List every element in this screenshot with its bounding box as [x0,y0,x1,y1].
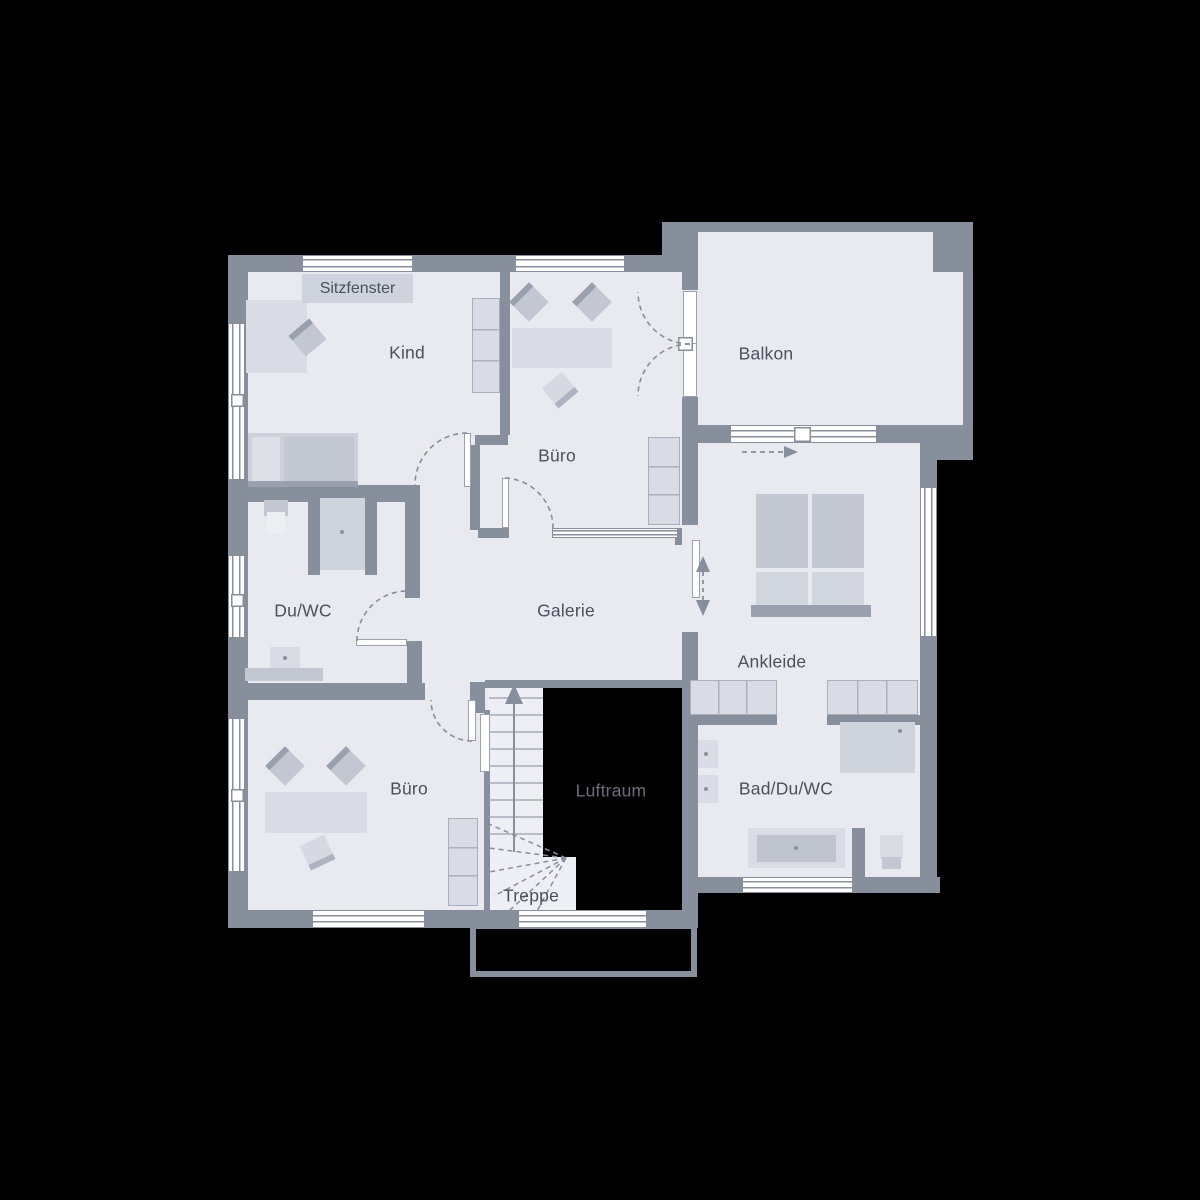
window [920,487,937,637]
room-label-ankleide: Ankleide [738,652,807,673]
window-mullion [794,427,811,442]
tub-drain [794,846,798,850]
window [312,910,425,928]
wardrobe-row [827,680,918,715]
vanity-counter [245,668,323,681]
shower-wall [308,485,320,575]
balcony-post [933,425,973,460]
room-label-luftraum: Luftraum [576,781,647,802]
wall [470,445,480,530]
floor-plan-canvas: Sitzfenster [0,0,1200,1200]
window [515,255,625,272]
toilet-bowl [880,835,903,859]
shower-wall [365,485,377,575]
room-label-bad-du-wc: Bad/Du/WC [739,779,833,800]
stairwell-area [488,687,543,913]
washbasin [698,775,718,803]
room-label-galerie: Galerie [537,601,595,622]
room-label-buero-unten: Büro [390,779,428,800]
sideboard [648,437,680,525]
bed-mattress [756,494,808,568]
door-opening [405,598,420,641]
balcony-parapet [662,222,973,232]
wall [405,502,420,598]
toilet-tank [882,857,901,869]
door-opening [425,683,468,700]
sliding-door-panel [692,540,700,598]
bed-mattress [812,494,864,568]
wall [228,255,698,272]
right-wing-floor-area [698,440,922,880]
wall [852,828,865,893]
door-opening [509,528,553,538]
sitzfenster-box: Sitzfenster [302,274,413,303]
balcony-floor-area [698,230,963,426]
toilet-bowl [267,512,285,534]
french-door-leaf [683,343,697,397]
sitzfenster-label: Sitzfenster [320,280,396,298]
shelf-cabinet [448,818,478,906]
lower-floor-outline [470,923,697,977]
bed-pillow [252,437,280,483]
room-label-kind: Kind [389,343,425,364]
bed-headboard [248,481,358,487]
shower-drain [340,530,344,534]
window [742,877,853,893]
wall [228,683,425,700]
balcony-post [662,222,698,270]
wardrobe-row [690,680,777,715]
window [302,255,413,272]
wall [407,641,422,685]
basin-drain [283,656,287,660]
room-label-buero-oben: Büro [538,446,576,467]
room-label-balkon: Balkon [739,344,794,365]
room-label-du-wc: Du/WC [274,601,331,622]
door-leaf [502,478,509,528]
desk [512,328,612,368]
wall [478,528,509,538]
window-handle [231,394,244,407]
shower-tray [840,722,915,773]
shower-drain [898,729,902,733]
interior-window [552,528,678,538]
bed-pillow [756,572,808,605]
door-handle [678,337,693,351]
basin-drain [704,752,708,756]
passage-opening [777,715,827,725]
shower-tray [320,498,365,570]
shelf-cabinet [472,298,500,393]
wall [475,435,508,445]
door-leaf [464,433,471,487]
wall [500,272,510,435]
wall [485,680,682,688]
door-leaf [356,639,407,646]
stair-railing [480,714,490,772]
basin-drain [704,787,708,791]
window-handle [231,789,244,802]
window [518,910,647,928]
bed-pillow [812,572,864,605]
door-leaf [468,700,476,741]
washbasin [698,740,718,768]
window-handle [231,594,244,607]
desk [265,792,367,833]
room-label-treppe: Treppe [503,886,559,907]
door-opening [420,485,464,502]
bed-mattress [284,437,354,483]
bed-headboard [751,605,871,617]
